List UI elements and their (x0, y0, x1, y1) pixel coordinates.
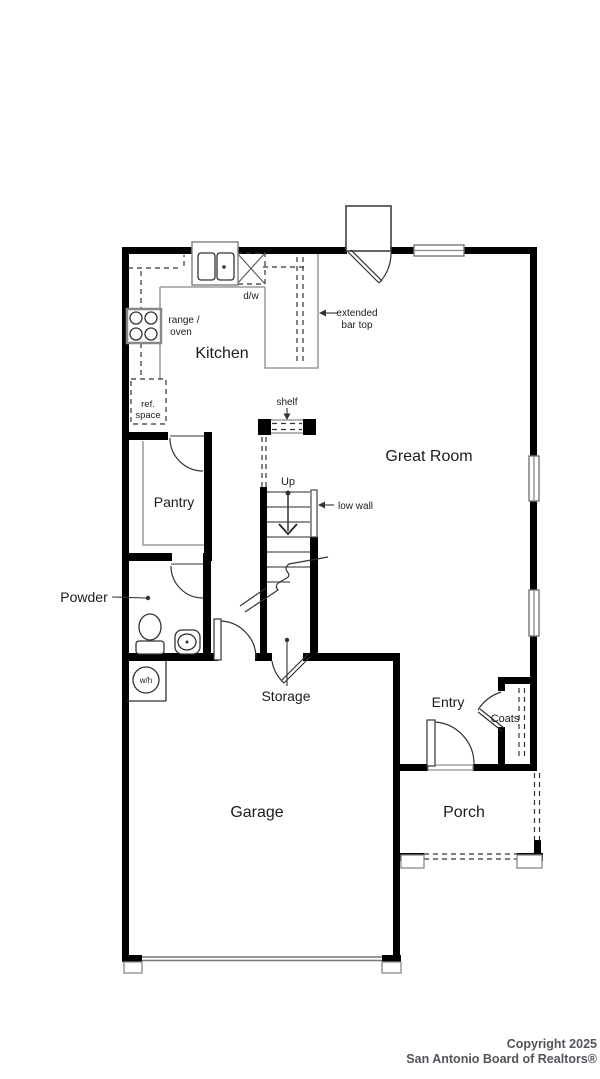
garage-hall-door (214, 619, 256, 660)
range-oven-icon (127, 309, 161, 343)
porch-label: Porch (443, 804, 485, 821)
porch-post-left (401, 855, 424, 868)
annotation-labels: d/w range / oven ref. space extended bar… (135, 291, 377, 512)
entry-label: Entry (432, 694, 465, 710)
water-heater-label: w/h (139, 676, 152, 685)
dishwasher-icon (237, 253, 265, 284)
sink-icon (192, 242, 238, 285)
storage-door (272, 654, 310, 683)
shelf-arrow (284, 408, 291, 420)
range-oven-label-1: range / (168, 315, 199, 326)
powder-door (171, 564, 203, 598)
low-wall-arrow (318, 502, 334, 509)
pantry-shelves (143, 441, 204, 545)
window-right-upper (529, 456, 539, 501)
window-top (414, 245, 464, 256)
copyright-notice: Copyright 2025 San Antonio Board of Real… (406, 1037, 597, 1067)
extended-bar-label-1: extended (336, 308, 377, 319)
water-heater-icon: w/h (127, 661, 166, 701)
lavatory-icon (175, 630, 200, 654)
rear-exterior-door (346, 206, 391, 283)
pantry-label: Pantry (154, 494, 194, 510)
windows (414, 245, 539, 636)
garage-label: Garage (230, 804, 283, 821)
dishwasher-label: d/w (243, 291, 259, 302)
toilet-icon (136, 614, 164, 654)
floor-plan: w/h Kitchen Great Room (0, 0, 600, 1074)
coats-door (478, 692, 504, 731)
up-arrow-icon (279, 491, 297, 535)
walls (122, 247, 543, 962)
bar-top-arrow (319, 310, 337, 317)
copyright-line1: Copyright 2025 (406, 1037, 597, 1052)
room-labels: Kitchen Great Room Pantry Powder Storage… (60, 345, 520, 821)
window-right-lower (529, 590, 539, 636)
ref-space-label-1: ref. (141, 399, 155, 410)
powder-leader (112, 596, 150, 600)
low-wall (311, 490, 317, 537)
up-label: Up (281, 476, 295, 488)
shelf-label: shelf (276, 397, 297, 408)
coats-rod (519, 688, 525, 760)
pantry-door (170, 436, 204, 471)
doors (170, 206, 504, 770)
stair-shelf (271, 420, 303, 433)
great-room-label: Great Room (385, 448, 472, 465)
porch-post-right (517, 855, 542, 868)
storage-label: Storage (261, 688, 310, 704)
coats-label: Coats (491, 713, 520, 725)
ref-space-label-2: space (135, 410, 160, 421)
range-oven-label-2: oven (170, 327, 192, 338)
low-wall-label: low wall (338, 501, 373, 512)
kitchen-label: Kitchen (195, 345, 248, 362)
front-door (427, 720, 474, 770)
extended-bar-label-2: bar top (341, 320, 373, 331)
garage-door (124, 957, 401, 973)
powder-label: Powder (60, 589, 108, 605)
copyright-line2: San Antonio Board of Realtors® (406, 1052, 597, 1067)
